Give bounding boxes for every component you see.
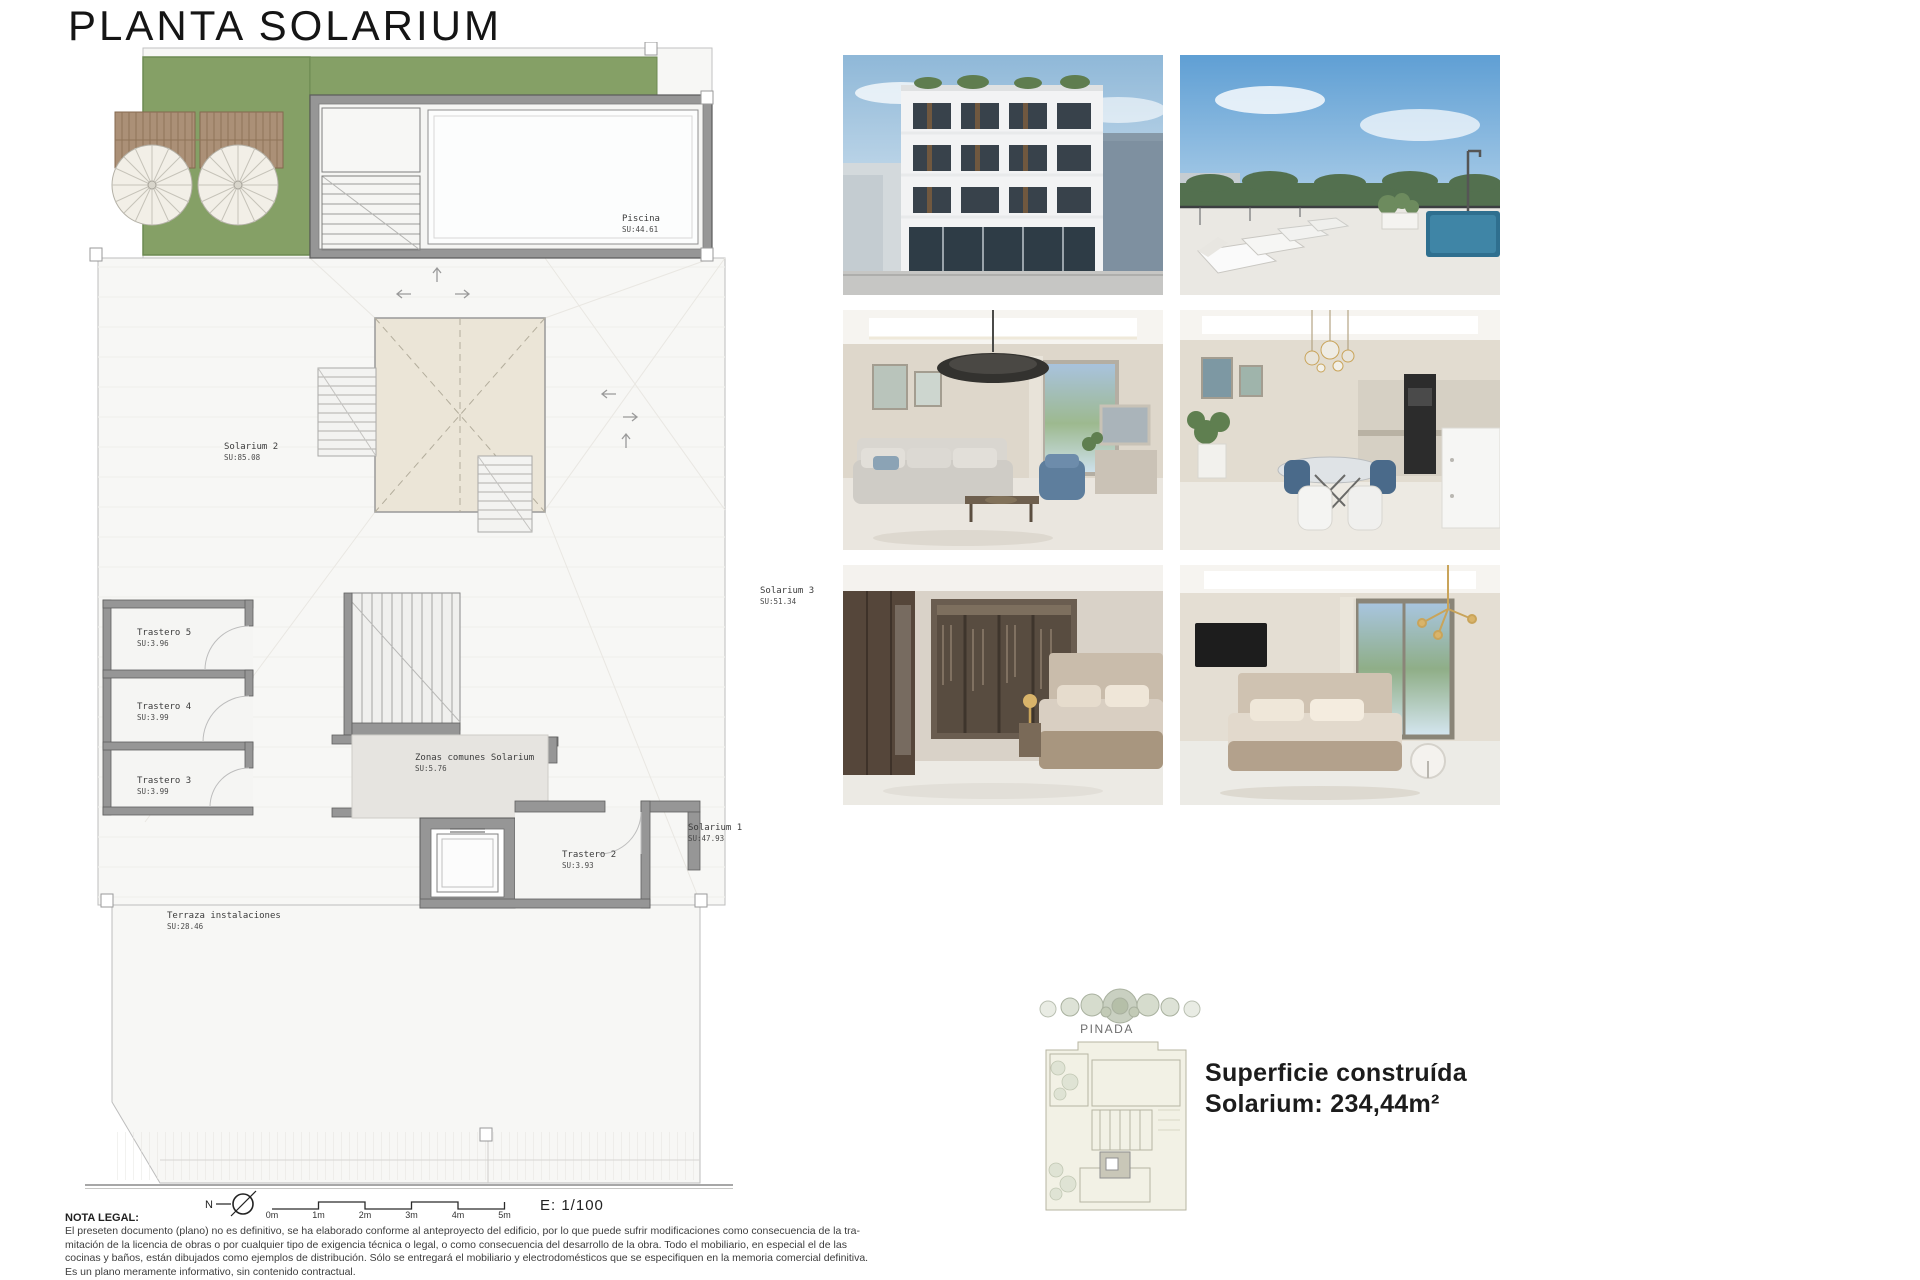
legal-heading: NOTA LEGAL: <box>65 1212 925 1224</box>
room-label-terraza-instalaciones: Terraza instalaciones SU:28.46 <box>167 911 281 932</box>
pinada-label: PINADA <box>1032 1022 1182 1036</box>
photo-living-room <box>843 310 1163 550</box>
summary-line-1: Superficie construída <box>1205 1058 1467 1089</box>
photo-building-exterior <box>843 55 1163 295</box>
dining-kitchen-render <box>1180 310 1500 550</box>
living-room-render <box>843 310 1163 550</box>
rooftop-terrace-render <box>1180 55 1500 295</box>
building-exterior-render <box>843 55 1163 295</box>
sofa <box>853 438 1013 504</box>
scale-bar-profile <box>272 1202 505 1209</box>
render-gallery <box>843 55 1500 805</box>
bed <box>1039 653 1163 769</box>
photo-bedroom-dressing <box>843 565 1163 805</box>
legal-line: mitación de la licencia de obras o por c… <box>65 1239 925 1253</box>
built-area-summary: Superficie construída Solarium: 234,44m² <box>1205 1058 1467 1120</box>
legal-line: Es un plano meramente informativo, sin c… <box>65 1266 925 1280</box>
photo-dining-kitchen <box>1180 310 1500 550</box>
room-label-solarium-2: Solarium 2 SU:85.08 <box>224 442 278 463</box>
room-label-piscina: Piscina SU:44.61 <box>622 214 660 235</box>
bedroom-window-render <box>1180 565 1500 805</box>
photo-bedroom-window <box>1180 565 1500 805</box>
bedroom-dressing-render <box>843 565 1163 805</box>
site-plan-thumbnail <box>1040 1040 1192 1213</box>
room-label-solarium-3: Solarium 3 SU:51.34 <box>760 586 814 607</box>
brochure-page: PLANTA SOLARIUM <box>0 0 1920 1280</box>
room-label-trastero-3: Trastero 3 SU:3.99 <box>137 776 191 797</box>
legal-note: NOTA LEGAL: El preseten documento (plano… <box>65 1212 925 1279</box>
photo-rooftop-pool-terrace <box>1180 55 1500 295</box>
room-label-trastero-4: Trastero 4 SU:3.99 <box>137 702 191 723</box>
room-label-trastero-5: Trastero 5 SU:3.96 <box>137 628 191 649</box>
room-label-zonas-comunes: Zonas comunes Solarium SU:5.76 <box>415 753 534 774</box>
legal-line: El preseten documento (plano) no es defi… <box>65 1225 925 1239</box>
room-label-solarium-1: Solarium 1 SU:47.93 <box>688 823 742 844</box>
north-label: N <box>205 1199 213 1211</box>
legal-line: cocinas y baños, están dibujados como ej… <box>65 1252 925 1266</box>
summary-line-2: Solarium: 234,44m² <box>1205 1089 1467 1120</box>
room-label-trastero-2: Trastero 2 SU:3.93 <box>562 850 616 871</box>
bed <box>1228 673 1402 771</box>
